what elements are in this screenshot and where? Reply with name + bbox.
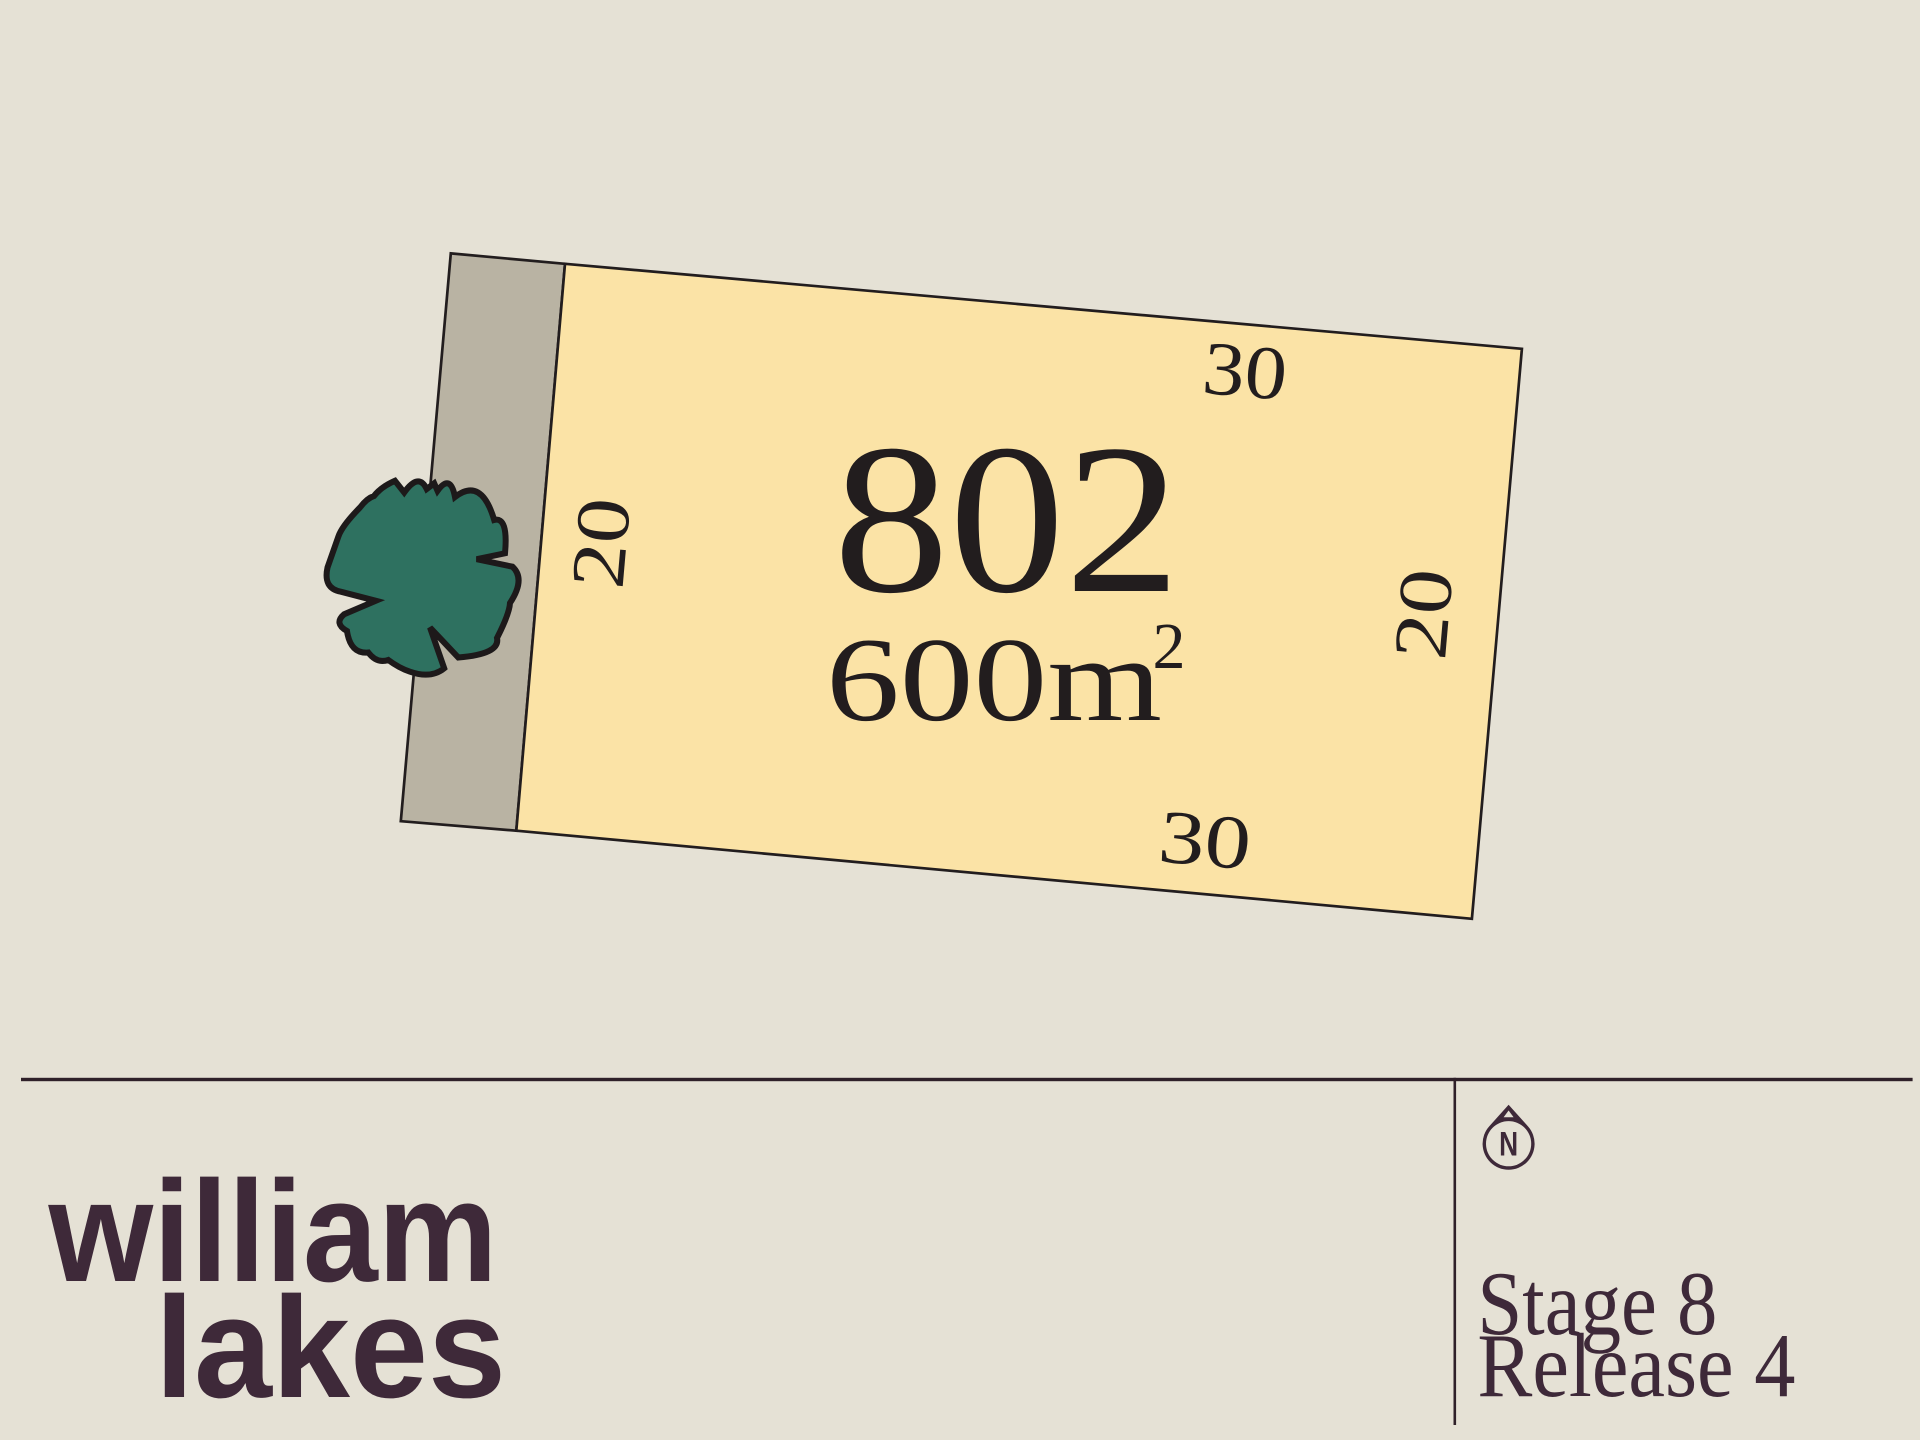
svg-text:802: 802 [833, 401, 1180, 638]
svg-text:20: 20 [556, 495, 648, 592]
svg-text:lakes: lakes [155, 1267, 506, 1428]
svg-text:20: 20 [1378, 566, 1470, 663]
svg-text:30: 30 [1199, 326, 1290, 417]
svg-text:2: 2 [1153, 610, 1186, 683]
svg-text:N: N [1499, 1125, 1518, 1163]
svg-text:Release 4: Release 4 [1477, 1315, 1795, 1416]
svg-text:30: 30 [1155, 794, 1254, 886]
svg-text:600m: 600m [826, 613, 1162, 746]
